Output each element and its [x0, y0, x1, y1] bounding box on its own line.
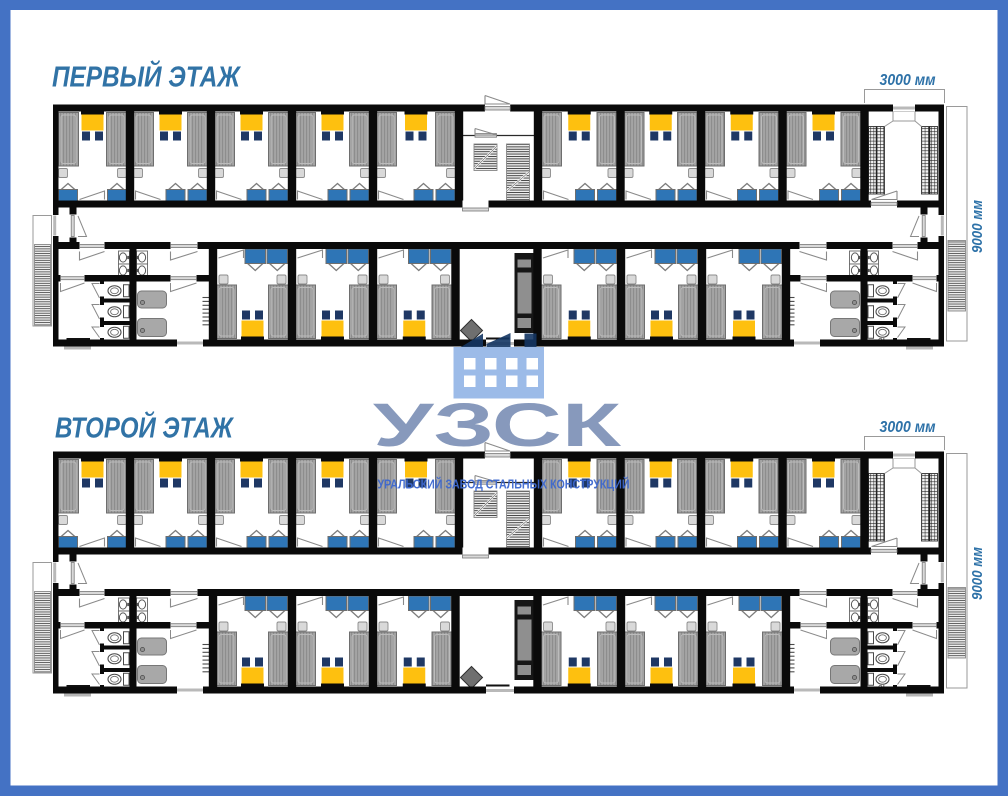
svg-text:ВТОРОЙ ЭТАЖ: ВТОРОЙ ЭТАЖ: [55, 410, 235, 445]
svg-text:3000 мм: 3000 мм: [880, 72, 936, 89]
svg-text:ПЕРВЫЙ ЭТАЖ: ПЕРВЫЙ ЭТАЖ: [52, 59, 242, 94]
svg-text:УРАЛЬСКИЙ ЗАВОД СТАЛЬНЫХ КОНСТ: УРАЛЬСКИЙ ЗАВОД СТАЛЬНЫХ КОНСТРУКЦИЙ: [378, 477, 630, 492]
svg-text:УЗСК: УЗСК: [373, 391, 622, 459]
svg-text:9000 мм: 9000 мм: [969, 547, 986, 600]
svg-text:9000 мм: 9000 мм: [969, 200, 986, 253]
svg-text:3000 мм: 3000 мм: [880, 419, 936, 436]
